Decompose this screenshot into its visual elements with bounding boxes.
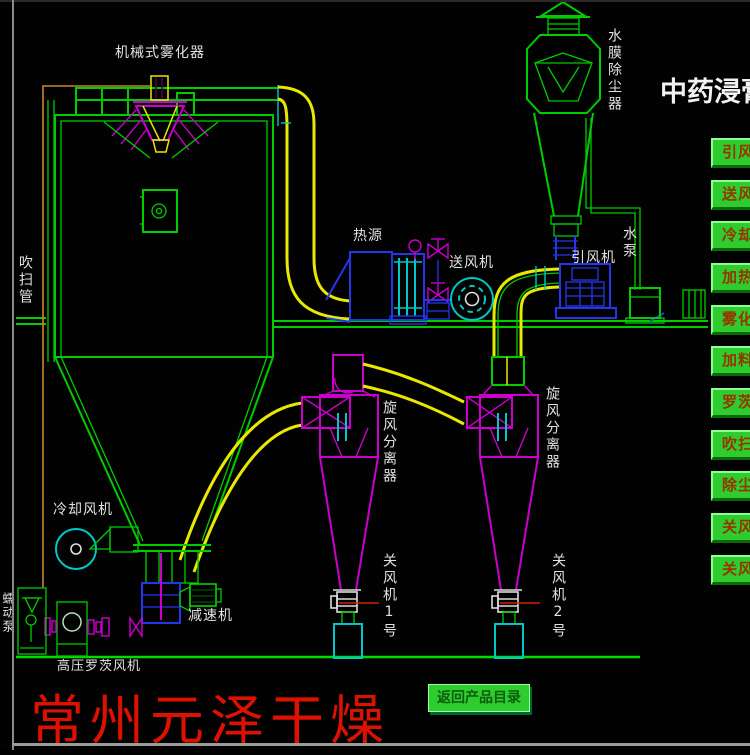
- cyclone-2-label: 旋风分离器: [544, 386, 560, 471]
- purge-pipe: [48, 100, 54, 362]
- roots-blower-label: 高压罗茨风机: [57, 659, 141, 675]
- heat-source-label: 热源: [353, 228, 383, 244]
- frame-bottom-edge: [12, 743, 750, 746]
- inspection-door: [143, 190, 177, 232]
- rotary-valve-2: [492, 590, 540, 658]
- supply-fan-label: 送风机: [449, 255, 494, 271]
- button-induced-fan[interactable]: 引风: [711, 138, 750, 168]
- purge-pipe-label: 吹扫管: [17, 255, 33, 306]
- button-roots-blower[interactable]: 罗茨: [711, 388, 750, 418]
- button-dust-removal[interactable]: 除尘: [711, 471, 750, 501]
- rotary-valve-2-label: 关风机2号: [550, 553, 566, 640]
- atomizer-label: 机械式雾化器: [115, 45, 205, 61]
- button-feeding[interactable]: 加料: [711, 346, 750, 376]
- back-to-catalog-button[interactable]: 返回产品目录: [428, 684, 530, 712]
- button-purge[interactable]: 吹扫: [711, 430, 750, 460]
- water-pump-label: 水泵: [621, 226, 637, 260]
- dust-collector-label: 水膜除尘器: [606, 28, 622, 113]
- cyclone-outlet-elbow: [494, 266, 560, 358]
- frame-top-edge: [0, 0, 750, 2]
- frame-left-edge: [12, 0, 14, 750]
- cooling-fan-unit: [56, 527, 138, 569]
- gear-reducer-label: 减速机: [188, 608, 233, 624]
- cyclone-1-label: 旋风分离器: [381, 400, 397, 485]
- screen: 机械式雾化器 水膜除尘器 吹扫管 热源 送风机 引风机 水泵 旋风分离器 旋风分…: [0, 0, 750, 750]
- process-diagram: [0, 0, 750, 750]
- button-atomize[interactable]: 雾化: [711, 305, 750, 335]
- supply-fan-blower: [424, 278, 493, 320]
- roots-blower-train: [45, 602, 142, 656]
- induced-draft-fan: [556, 264, 616, 318]
- water-pump-unit: [626, 288, 705, 323]
- aux-pump: [683, 290, 705, 318]
- rotary-valve-1-label: 关风机1号: [381, 553, 397, 640]
- cyclone-separator-2: [467, 357, 538, 590]
- drying-chamber: [55, 115, 273, 545]
- button-cooling[interactable]: 冷却: [711, 221, 750, 251]
- peristaltic-pump-unit: [18, 588, 46, 654]
- heater-assembly: [326, 250, 426, 324]
- button-heating[interactable]: 加热: [711, 263, 750, 293]
- button-rotary-valve-2[interactable]: 关风: [711, 555, 750, 585]
- dust-collector: [527, 2, 600, 260]
- button-rotary-valve-1[interactable]: 关风: [711, 513, 750, 543]
- rotary-valve-1: [331, 590, 379, 658]
- hot-air-pipe: [278, 87, 350, 319]
- button-supply-fan[interactable]: 送风: [711, 180, 750, 210]
- induced-fan-label: 引风机: [571, 250, 616, 266]
- cooling-fan-label: 冷却风机: [53, 502, 113, 518]
- page-title: 中药浸膏: [660, 70, 750, 109]
- transport-pipe: [180, 403, 302, 572]
